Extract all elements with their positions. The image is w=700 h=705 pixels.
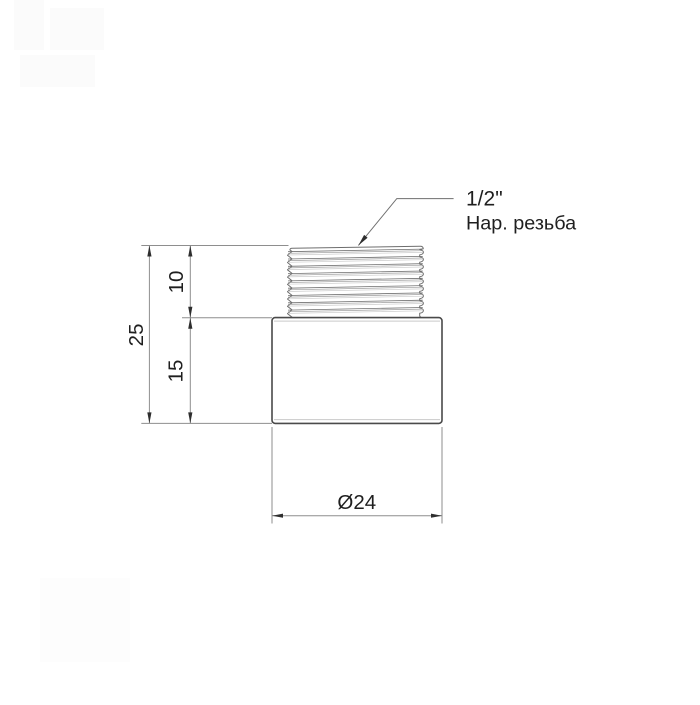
svg-text:10: 10	[165, 271, 188, 294]
svg-text:Ø24: Ø24	[337, 491, 376, 514]
svg-text:15: 15	[164, 360, 187, 383]
svg-text:25: 25	[125, 323, 148, 346]
svg-text:1/2": 1/2"	[466, 188, 503, 211]
svg-text:Нар. резьба: Нар. резьба	[466, 213, 576, 235]
